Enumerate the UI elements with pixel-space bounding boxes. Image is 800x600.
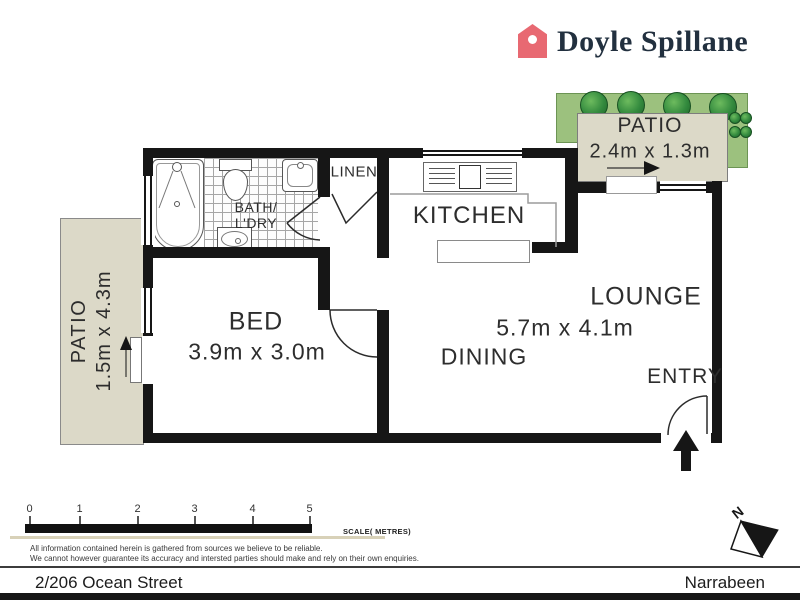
plant-icon [740,112,752,124]
bath-label-line1: BATH/ [235,199,278,215]
kitchen-window [423,147,522,159]
wall-segment [712,181,722,443]
scale-tick-label: 5 [306,503,313,515]
entry-door-opening [661,432,711,444]
wall-segment [565,148,578,252]
bed-patio-door-panel [130,337,142,383]
entry-door-arc [668,396,707,435]
disclaimer-line2: We cannot however guarantee its accuracy… [30,554,419,564]
basin-icon [282,159,318,192]
disclaimer: All information contained herein is gath… [30,544,419,563]
wall-segment [377,148,389,258]
bed-window [141,288,155,333]
patio-left-label: PATIO 1.5m x 4.3m [67,235,119,427]
room-name: BED [229,308,283,337]
brand-name: Doyle Spillane [557,25,748,59]
room-name: LINEN [331,164,378,181]
house-icon [528,35,537,44]
scale-tick-label: 2 [134,503,141,515]
brand-logo [518,24,547,58]
bath-label-line2: L'DRY [235,215,278,231]
scale-tick-mark [309,516,311,524]
bathtub-icon [152,159,204,251]
cooktop-icon [423,162,517,192]
cooktop-sink [459,165,481,189]
scale-tick-mark [194,516,196,524]
scale-tick-label: 3 [191,503,198,515]
wall-segment [143,247,330,258]
lounge-window [660,181,706,194]
footer-divider [0,566,800,568]
scale-tick-mark [252,516,254,524]
scale-tick-label: 4 [249,503,256,515]
room-name: KITCHEN [413,202,525,230]
room-name: PATIO [618,114,683,138]
patio-sliding-door-opening [606,176,657,194]
scale-tick-label: 0 [26,503,33,515]
scale-tick-mark [79,516,81,524]
wall-segment [318,247,330,310]
bed-patio-door-opening [142,336,154,384]
footer-bar [0,593,800,600]
linen-bifold-doors [332,192,377,223]
wall-segment [377,310,389,443]
room-name: ENTRY [647,365,723,389]
room-dims: 1.5m x 4.3m [92,235,117,427]
plant-icon [740,126,752,138]
scale-tick-label: 1 [76,503,83,515]
disclaimer-line1: All information contained herein is gath… [30,544,419,554]
scale-bar-rule [25,524,312,533]
cooktop-burner-lines [486,168,512,187]
scale-tick-mark [29,516,31,524]
wall-segment [318,148,330,197]
scale-underline [10,536,385,539]
scale-bar-caption: SCALE( METRES) [343,527,411,536]
room-name: DINING [441,344,528,371]
floorplan-page: Doyle Spillane PATIO 1.5m x 4.3m PATIO 2… [0,0,800,600]
room-dims: 3.9m x 3.0m [188,339,326,366]
room-name: LOUNGE [590,283,702,312]
footer-suburb: Narrabeen [685,573,765,593]
room-dims: 2.4m x 1.3m [589,141,710,164]
cooktop-burner-lines [429,168,455,187]
wall-segment [532,242,578,253]
room-name: PATIO [67,235,92,427]
north-arrow-icon: N [729,503,778,557]
footer-address: 2/206 Ocean Street [35,573,182,593]
island-bench-icon [437,240,530,263]
scale-tick-mark [137,516,139,524]
bath-window [141,176,155,245]
compass-north-label: N [729,503,747,522]
bed-door-arc [330,310,377,357]
wall-segment [143,433,722,443]
room-dims: 5.7m x 4.1m [496,315,634,342]
room-name-bath: BATH/ L'DRY [235,199,278,231]
